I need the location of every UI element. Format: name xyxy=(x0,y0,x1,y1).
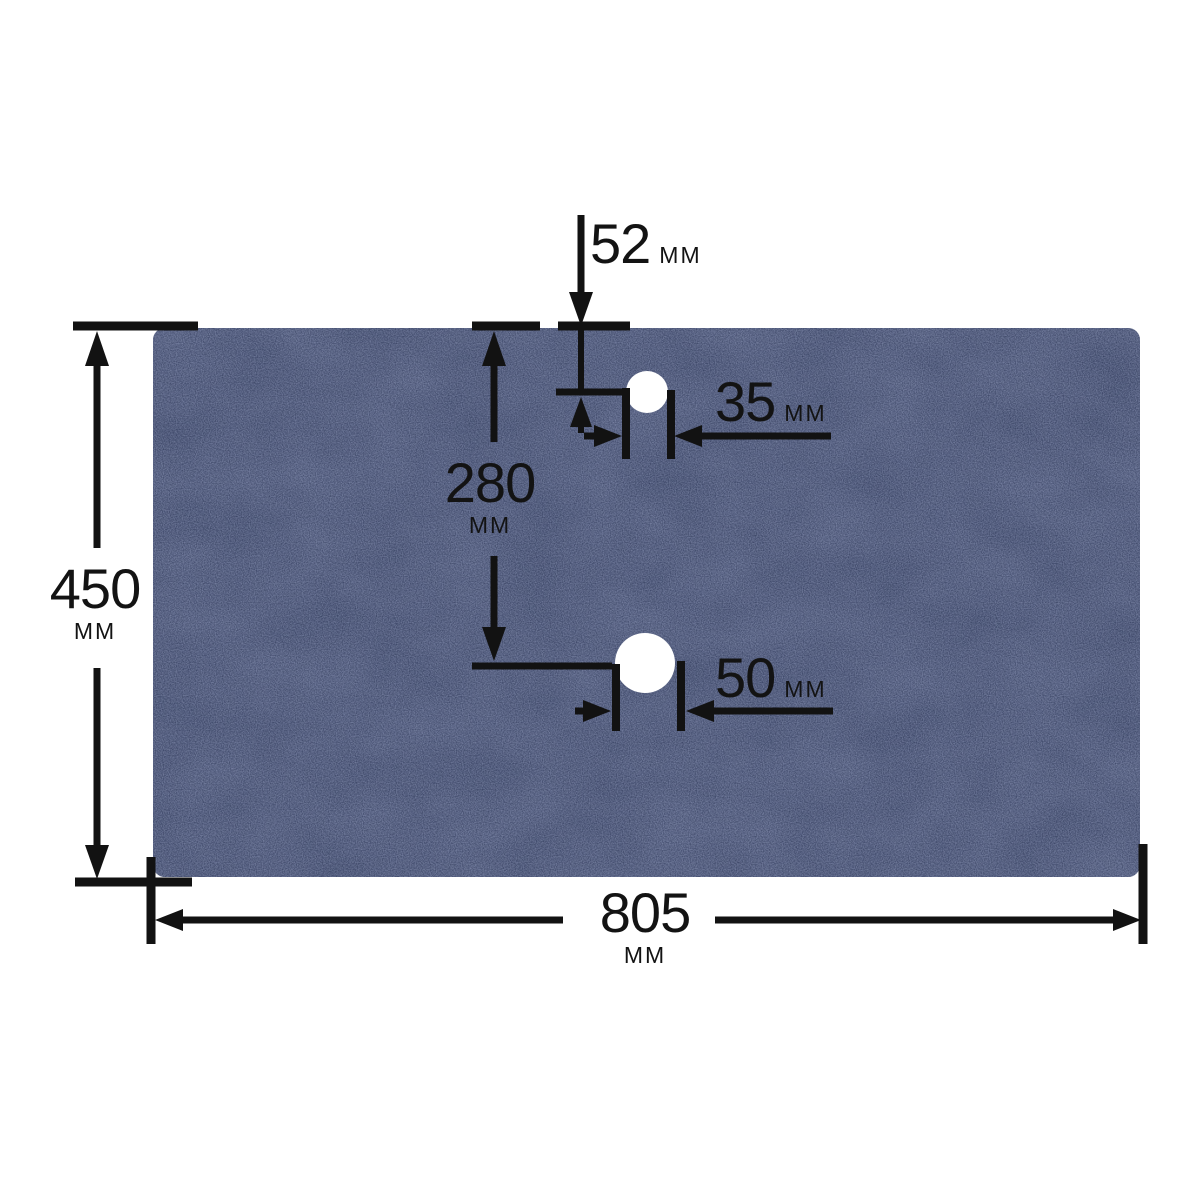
dim-label-280mm: 280 MM xyxy=(405,455,575,537)
dim-value: 280 xyxy=(405,455,575,511)
arrowhead-52-down xyxy=(569,292,593,326)
dim-unit: MM xyxy=(784,402,826,425)
arrowhead-805-right xyxy=(1113,909,1141,931)
arrowhead-450-bottom xyxy=(85,845,109,879)
hole-large xyxy=(615,633,675,693)
dim-label-450mm: 450 MM xyxy=(10,561,180,643)
dim-value: 35 xyxy=(715,374,775,430)
dim-unit: MM xyxy=(10,620,180,643)
dim-unit: MM xyxy=(784,678,826,701)
dim-unit: MM xyxy=(405,514,575,537)
hole-small xyxy=(626,371,668,413)
diagram-canvas: 52 MM 35 MM 280 MM 450 MM 50 MM 805 MM xyxy=(0,0,1200,1200)
dim-value: 52 xyxy=(590,216,650,272)
dim-label-35mm: 35 MM xyxy=(715,374,827,430)
dim-label-50mm: 50 MM xyxy=(715,650,827,706)
dim-label-52mm: 52 MM xyxy=(590,216,702,272)
dim-unit: MM xyxy=(560,944,730,967)
dim-value: 805 xyxy=(560,885,730,941)
dimension-diagram xyxy=(0,0,1200,1200)
dim-value: 450 xyxy=(10,561,180,617)
dim-label-805mm: 805 MM xyxy=(560,885,730,967)
dim-unit: MM xyxy=(659,244,701,267)
dim-value: 50 xyxy=(715,650,775,706)
